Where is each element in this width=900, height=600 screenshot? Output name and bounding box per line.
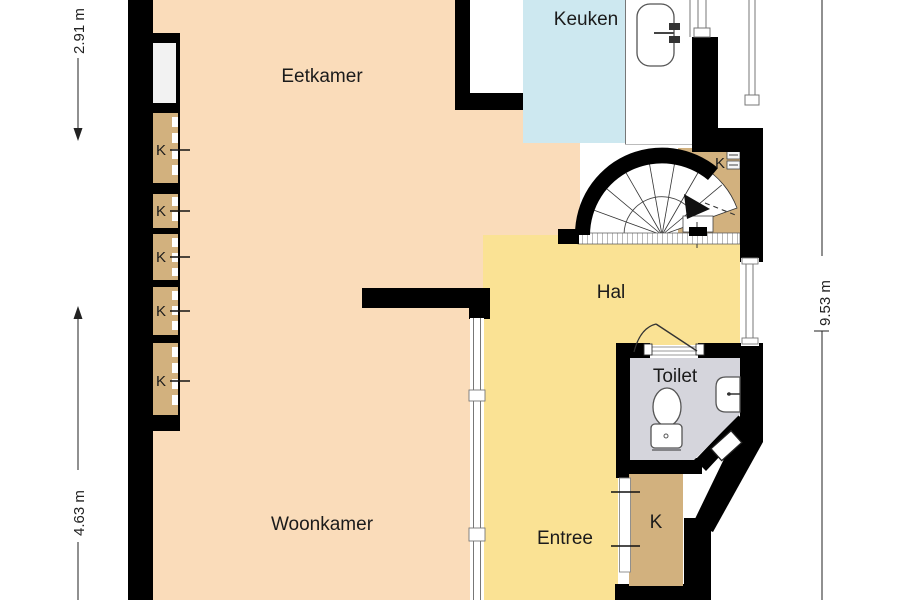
wall-stair-bottom-stub — [689, 227, 707, 236]
wall-toilet-top-right — [698, 343, 742, 358]
glass-partition-woonkamer-entree — [469, 318, 485, 600]
top-opening — [455, 0, 523, 110]
dimension-label: 4.63 m — [71, 490, 88, 536]
stair-threshold — [578, 233, 740, 244]
living-floor-strip — [523, 143, 580, 243]
closet-label-stairs: K — [715, 155, 725, 172]
floorplan: K K K K K — [0, 0, 900, 600]
entree-closet: K — [611, 474, 683, 586]
closet-label: K — [156, 373, 166, 390]
opening-jamb — [455, 0, 470, 97]
wall-hal-top-stub — [558, 229, 579, 244]
closet-label: K — [156, 142, 166, 159]
room-label-eetkamer: Eetkamer — [281, 66, 363, 87]
wall-toilet-bottom — [616, 458, 702, 474]
room-label-keuken: Keuken — [554, 9, 618, 30]
dimension-bottom-left: 4.63 m — [71, 306, 88, 600]
window-left-pane — [153, 43, 176, 103]
closet-label: K — [156, 203, 166, 220]
opening-sill-wall — [455, 93, 523, 110]
room-label-toilet: Toilet — [653, 366, 698, 387]
toilet-icon — [651, 388, 682, 450]
room-label-entree: Entree — [537, 528, 593, 549]
closet-label: K — [650, 512, 663, 533]
kitchen-sink-icon — [637, 4, 674, 66]
window-right-top — [745, 0, 759, 105]
closet-label: K — [156, 249, 166, 266]
dimension-label: 2.91 m — [71, 8, 88, 54]
wall-left — [128, 0, 153, 600]
wall-woonkamer-hal — [362, 288, 490, 308]
wall-toilet-left — [616, 343, 630, 478]
wall-stair-top-bar — [692, 128, 763, 152]
dimension-top-left: 2.91 m — [71, 8, 88, 141]
arrow-down-icon — [74, 128, 83, 141]
window-kitchen-top — [694, 0, 710, 37]
dimension-label: 9.53 m — [817, 280, 834, 326]
opening-gap — [470, 0, 523, 93]
closet-label: K — [156, 303, 166, 320]
wall-entree-bottom — [615, 584, 685, 600]
wall-woonkamer-hal-foot — [469, 308, 490, 319]
kitchen-counter — [625, 0, 692, 145]
room-label-hal: Hal — [597, 282, 626, 303]
wall-right-lower — [740, 343, 763, 430]
wall-kitchen-right — [692, 37, 718, 130]
dimension-right: 9.53 m — [814, 0, 834, 600]
basin-icon — [716, 377, 740, 412]
wall-bottomright-vertical — [684, 518, 711, 600]
floorplan-canvas: K K K K K — [0, 0, 900, 600]
wall-right-upper — [740, 150, 763, 262]
room-label-woonkamer: Woonkamer — [271, 514, 374, 535]
window-hal-right — [741, 258, 759, 346]
